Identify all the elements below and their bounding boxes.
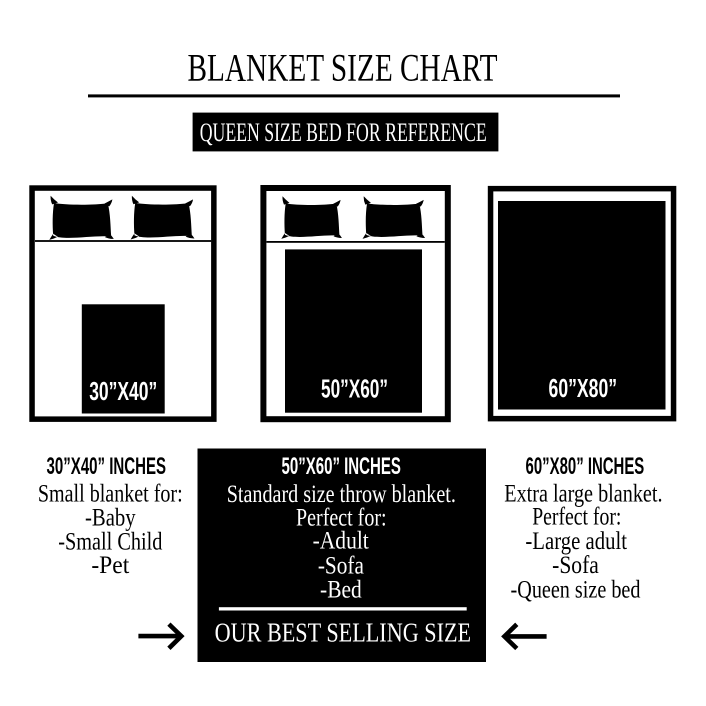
svg-text:QUEEN SIZE BED FOR REFERENCE: QUEEN SIZE BED FOR REFERENCE (200, 118, 487, 147)
svg-text:30”X40” INCHES: 30”X40” INCHES (47, 453, 167, 480)
svg-text:60”X80” INCHES: 60”X80” INCHES (526, 453, 645, 480)
svg-text:-Bed: -Bed (320, 577, 362, 604)
svg-text:-Sofa: -Sofa (318, 552, 364, 579)
svg-text:30”X40”: 30”X40” (89, 378, 157, 406)
svg-text:50”X60” INCHES: 50”X60” INCHES (282, 453, 401, 480)
svg-text:OUR BEST SELLING SIZE: OUR BEST SELLING SIZE (215, 618, 472, 648)
svg-text:BLANKET SIZE CHART: BLANKET SIZE CHART (188, 46, 498, 90)
svg-text:50”X60”: 50”X60” (321, 376, 388, 404)
svg-text:Small blanket for:: Small blanket for: (38, 480, 183, 507)
svg-text:-Sofa: -Sofa (552, 552, 599, 579)
svg-text:Perfect for:: Perfect for: (532, 504, 621, 531)
svg-text:-Queen size bed: -Queen size bed (511, 576, 641, 603)
svg-text:-Adult: -Adult (313, 528, 369, 555)
svg-text:60”X80”: 60”X80” (549, 375, 618, 403)
svg-text:-Pet: -Pet (91, 552, 129, 579)
